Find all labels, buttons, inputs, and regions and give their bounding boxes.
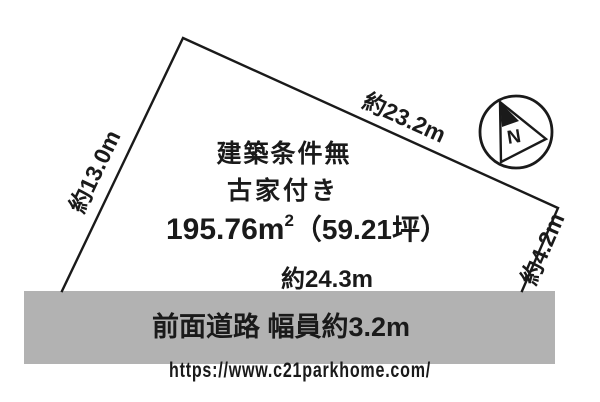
front-road-label: 前面道路 幅員約3.2m [152,311,410,342]
area-label: 195.76m2（59.21坪） [166,211,448,246]
area-value: 195.76m [166,213,284,246]
old-house-label: 古家付き [227,176,339,205]
area-tsubo: （59.21坪） [294,213,448,245]
watermark-url: https://www.c21parkhome.com/ [169,359,431,382]
condition-label: 建築条件無 [216,139,351,168]
plot-diagram-canvas: 約13.0m 約23.2m 約4.2m 約24.3m 建築条件無 古家付き 19… [0,0,600,402]
area-superscript: 2 [284,211,293,230]
land-plot-diagram: 約13.0m 約23.2m 約4.2m 約24.3m 建築条件無 古家付き 19… [0,0,600,402]
bottom-edge-length-label: 約24.3m [281,265,373,293]
